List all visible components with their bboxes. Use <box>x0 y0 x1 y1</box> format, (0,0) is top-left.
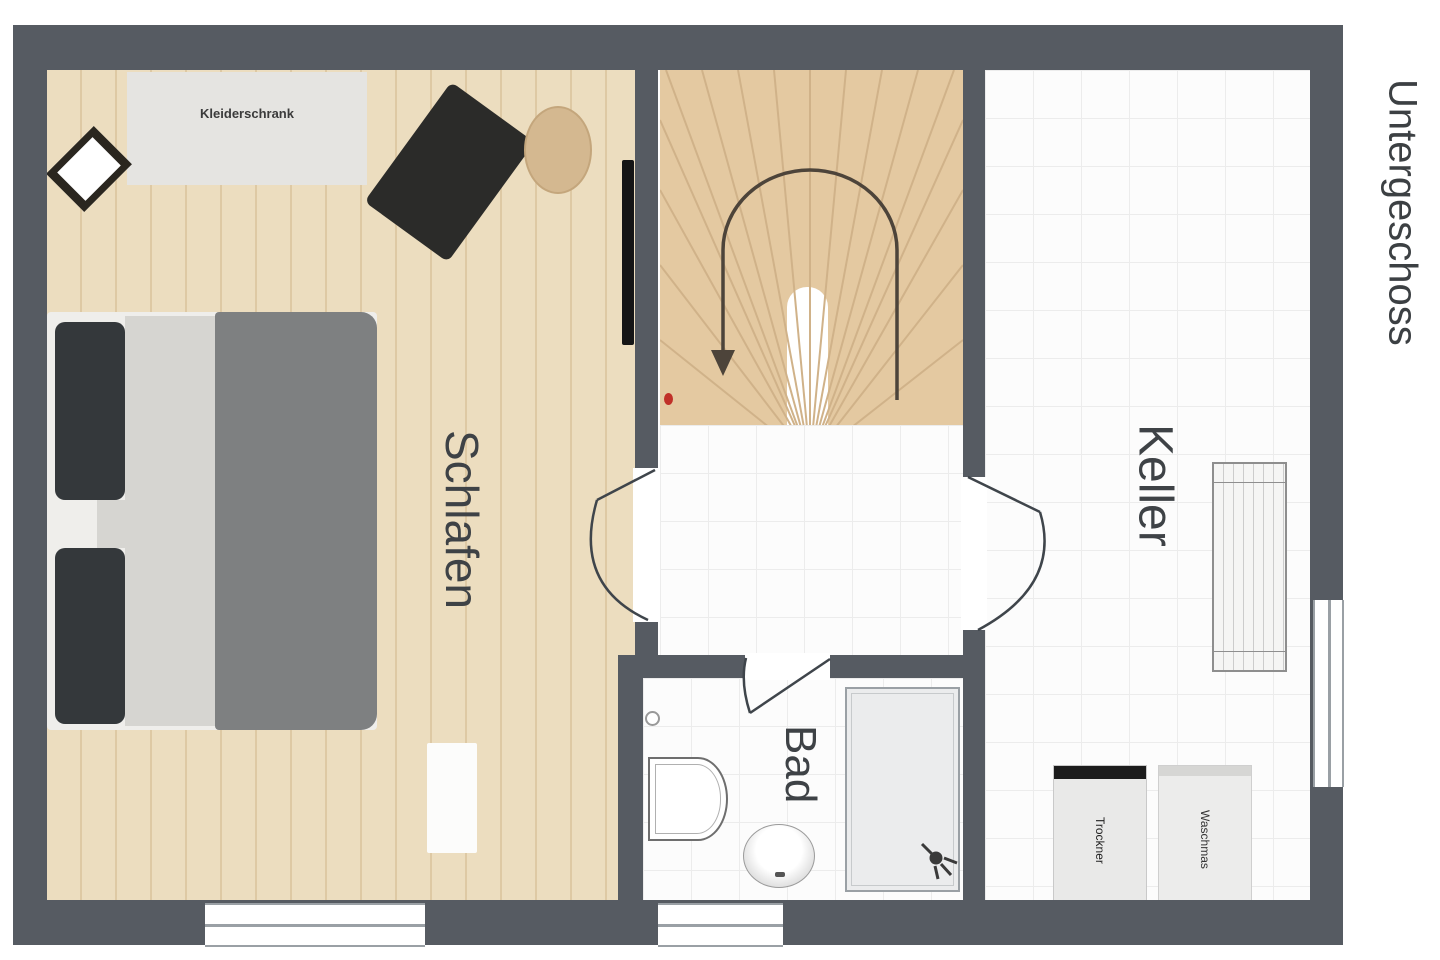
radiator-top-line <box>1214 482 1285 483</box>
bed-pillow-top <box>55 322 125 500</box>
door-opening-cellar <box>961 477 987 630</box>
wardrobe: Kleiderschrank <box>127 72 367 185</box>
window-mullion <box>1328 600 1331 787</box>
toilet-bowl-line <box>655 764 721 834</box>
floor-mat <box>427 743 477 853</box>
dryer: Trockner <box>1053 765 1147 903</box>
window-mullion <box>205 924 425 927</box>
door-opening-bath <box>745 653 830 680</box>
window-cellar <box>1313 600 1344 787</box>
radiator-shelf <box>1212 462 1287 672</box>
hallway-floor <box>660 425 963 678</box>
radiator-bottom-line <box>1214 651 1285 652</box>
outer-wall-top <box>13 25 1343 70</box>
toilet-flush-button <box>645 711 660 726</box>
stair-marker-dot <box>664 393 673 405</box>
washing-machine: Waschmas <box>1158 765 1252 903</box>
dryer-top-band <box>1054 766 1146 779</box>
window-mullion <box>658 924 783 927</box>
door-opening-bedroom <box>633 468 660 622</box>
sink <box>743 824 815 888</box>
floor-plan: Kleiderschrank Trockner Waschmas <box>0 0 1440 960</box>
bed-pillow-bottom <box>55 548 125 724</box>
wall-bedroom-bath <box>618 655 643 903</box>
dryer-label: Trockner <box>1054 779 1146 902</box>
outer-wall-right <box>1310 25 1343 945</box>
bed-headboard-gap <box>97 500 129 548</box>
wardrobe-label: Kleiderschrank <box>127 106 367 121</box>
room-label-bad: Bad <box>772 712 828 816</box>
washer-label: Waschmas <box>1159 776 1251 902</box>
bed-sheet <box>125 316 217 726</box>
room-label-schlafen: Schlafen <box>432 405 492 635</box>
toilet <box>648 757 728 841</box>
window-bath <box>658 903 783 947</box>
stair-entry-landing <box>787 287 828 425</box>
bed-blanket <box>215 312 377 730</box>
double-bed <box>47 312 377 730</box>
sink-tap <box>775 872 785 877</box>
page-title: Untergeschoss <box>1372 22 1432 402</box>
washer-top-band <box>1159 766 1251 776</box>
round-stool <box>524 106 592 194</box>
tv <box>622 160 634 345</box>
shower <box>845 687 960 892</box>
room-label-keller: Keller <box>1125 385 1185 585</box>
outer-wall-left <box>13 25 47 945</box>
window-bedroom <box>205 903 425 947</box>
shower-inner-line <box>851 693 954 886</box>
